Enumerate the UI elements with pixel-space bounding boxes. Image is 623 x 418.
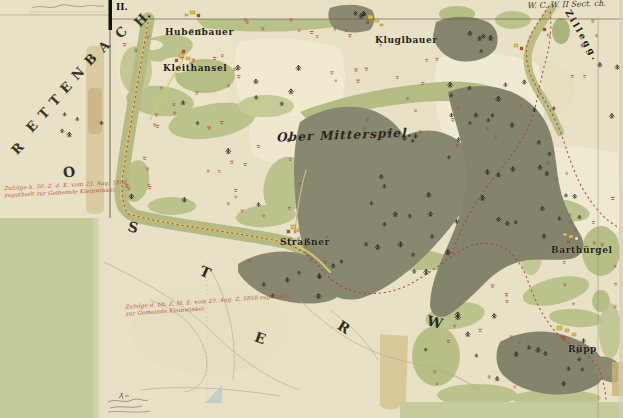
cadastral-map-sheet: II. W. C. W. II Sect. ch. R E T T E N B …: [0, 0, 623, 418]
map-canvas: [0, 0, 623, 418]
